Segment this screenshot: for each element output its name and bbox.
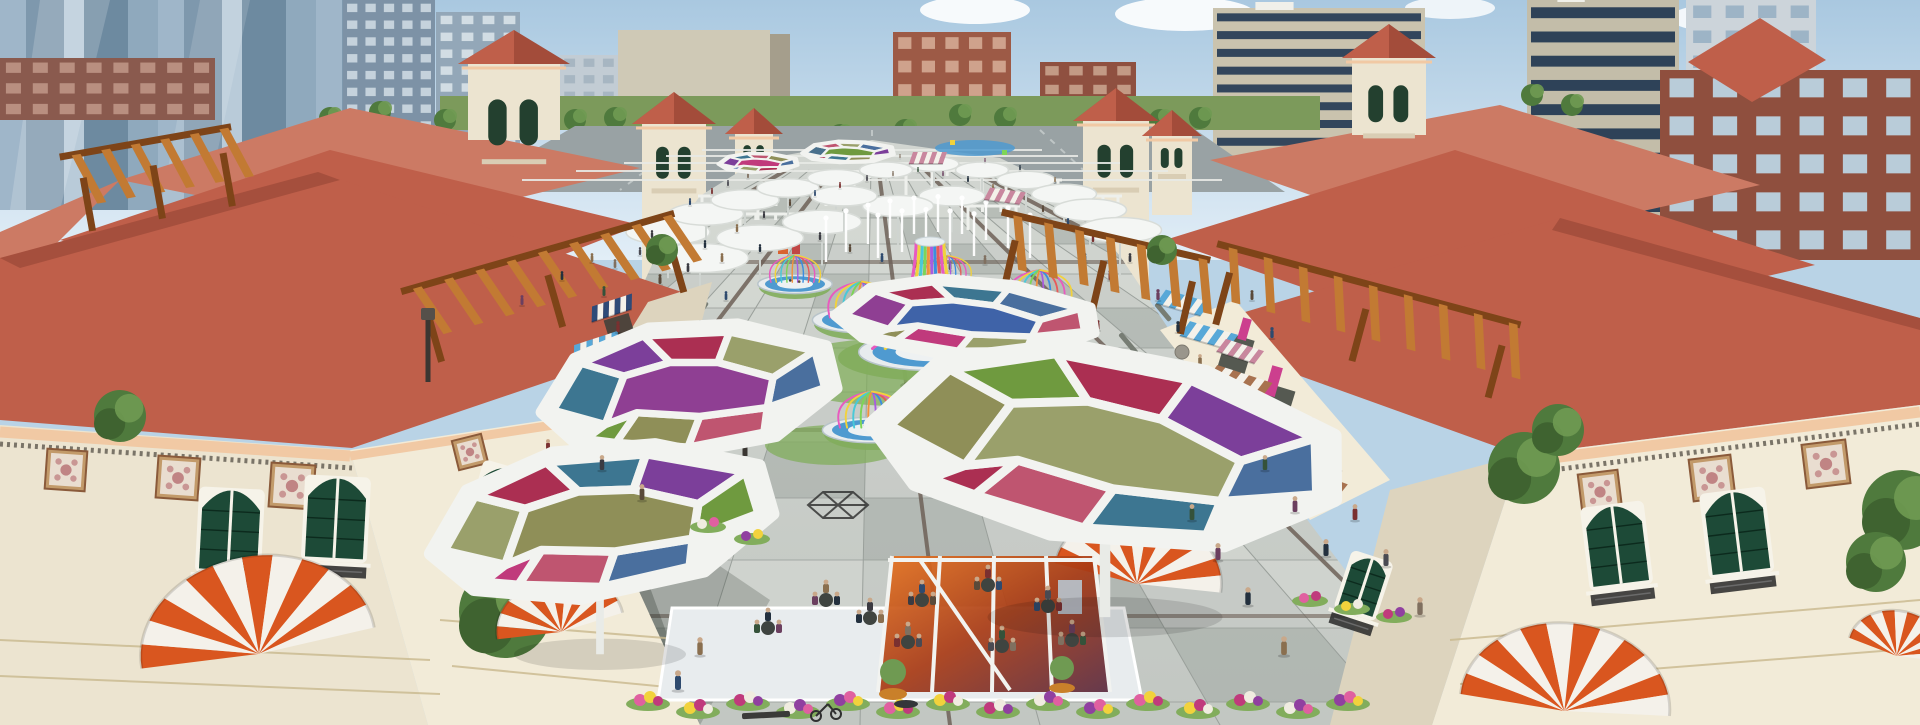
scooter-silhouette [894,700,918,708]
window-band [1531,104,1675,115]
circle-shape [1203,704,1213,714]
rect-shape [1054,178,1056,182]
circle-shape [1353,504,1358,509]
circle-shape [613,107,627,121]
circle-shape [942,171,944,173]
circle-shape [614,259,617,262]
window [140,63,155,73]
window [194,83,209,93]
circle-shape [659,274,662,277]
rect-shape [763,213,765,218]
ellipse-shape [1018,171,1021,172]
circle-shape [689,198,691,200]
table [901,635,915,649]
circle-shape [1323,539,1328,544]
rect-shape [1092,236,1094,242]
window [347,88,357,96]
rect-shape [899,155,900,158]
rect-shape [881,256,884,262]
circle-shape [984,158,985,159]
window [441,33,453,41]
ellipse-shape [865,181,869,182]
circle-shape [865,203,870,208]
ellipse-shape [757,252,762,253]
circle-shape [895,634,900,639]
window [365,37,375,45]
window-band [1531,32,1675,43]
window [898,61,911,73]
ellipse-shape [1260,470,1270,473]
window [402,88,412,96]
circle-shape [887,198,892,203]
foliage-clump [94,390,146,442]
circle-shape [997,577,1002,582]
window [402,4,412,12]
window [1800,78,1824,97]
window [33,83,48,93]
rect-shape [819,234,821,240]
window [922,37,935,49]
panel-canopy [802,141,894,162]
ellipse-shape [1154,300,1161,302]
ellipse-shape [597,470,607,473]
ellipse-shape [879,688,907,700]
ellipse-shape [1127,262,1133,264]
ellipse-shape [688,205,692,206]
ellipse-shape [1376,611,1412,623]
window [1843,78,1867,97]
seated-person [812,596,818,605]
circle-shape [651,230,653,232]
circle-shape [881,253,884,256]
table [819,593,833,607]
circle-shape [1003,107,1017,121]
rect-shape [759,246,761,252]
window [898,84,911,96]
ellipse-shape [813,196,817,197]
rect-shape [591,256,594,262]
window [584,59,595,67]
circle-shape [1190,504,1195,509]
circle-shape [853,696,863,706]
window [1886,230,1910,249]
seated-person [754,624,760,633]
circle-shape [1299,593,1309,603]
window [483,33,495,41]
window [1713,116,1737,135]
ellipse-shape [1053,183,1056,184]
rect-shape [1019,166,1021,170]
arched-window [488,99,506,145]
circle-shape [947,208,952,213]
rect-shape [849,246,851,252]
balcony [482,159,546,164]
window [1756,116,1780,135]
seated-person [916,638,922,647]
seated-person [908,596,914,605]
ellipse-shape [1249,300,1255,302]
rect-shape [421,308,435,320]
rect-shape [468,58,560,140]
window [194,63,209,73]
ellipse-shape [915,237,945,246]
circle-shape [824,580,829,585]
stone-sphere [1175,345,1189,359]
rect-shape [747,174,749,178]
rect-shape [892,172,894,176]
rect-shape [521,298,524,305]
window [1843,154,1867,173]
window [1756,154,1780,173]
ellipse-shape [710,194,714,195]
window [421,4,431,12]
table [863,611,877,625]
circle-shape [1341,601,1351,611]
window [87,83,102,93]
tile-art-panel [45,449,88,492]
window [1886,154,1910,173]
window [1843,230,1867,249]
circle-shape [727,180,729,182]
circle-shape [1553,408,1582,437]
circle-shape [814,190,816,192]
circle-shape [777,620,782,625]
seated-person [988,642,994,651]
window [113,83,128,93]
window [945,84,958,96]
circle-shape [813,592,818,597]
window [1800,154,1824,173]
rect-shape [1042,207,1044,212]
rect-shape [1263,459,1268,470]
circle-shape [603,286,606,289]
window [365,4,375,12]
window [384,37,394,45]
table [995,639,1009,653]
person [1350,504,1360,522]
window [1069,85,1082,94]
rect-shape [1293,500,1298,512]
window [384,88,394,96]
window [421,71,431,79]
ellipse-shape [788,206,792,207]
window [1670,78,1694,97]
seated-person [930,596,936,605]
arched-window [1120,145,1133,178]
seated-person [1010,642,1016,651]
ellipse-shape [746,178,750,179]
window [6,83,21,93]
arched-window [1368,85,1383,122]
window [441,49,453,57]
window [483,16,495,24]
ellipse-shape [899,159,902,160]
foliage-clump [1147,235,1177,265]
table [981,578,995,592]
seated-person [974,581,980,590]
window [1843,116,1867,135]
plaza-rendering [0,0,1920,725]
foliage-clump [1532,404,1584,456]
window [365,20,375,28]
rect-shape [1152,130,1192,215]
planter-pot [1049,656,1075,693]
circle-shape [892,171,894,173]
window [113,104,128,114]
ellipse-shape [1268,338,1275,340]
window [1693,31,1711,44]
rect-shape [1383,554,1388,566]
window [421,88,431,96]
circle-shape [953,696,963,706]
circle-shape [879,610,884,615]
seated-person [765,612,771,621]
seated-person [905,626,911,635]
ellipse-shape [690,521,726,533]
circle-shape [1050,656,1074,680]
circle-shape [755,620,760,625]
balcony [1093,188,1139,193]
table [761,621,775,635]
window [113,63,128,73]
rect-shape [1270,330,1273,338]
circle-shape [906,622,911,627]
rect-shape [1129,256,1132,262]
window [1726,6,1744,19]
window [1886,192,1910,211]
window [1800,192,1824,211]
circle-shape [857,610,862,615]
seated-person [1058,636,1064,645]
circle-shape [899,154,900,155]
window [1693,6,1711,19]
window-band [1531,80,1675,91]
circle-shape [1303,704,1313,714]
circle-shape [753,529,763,539]
circle-shape [1251,290,1254,293]
window [969,37,982,49]
circle-shape [1383,549,1388,554]
circle-shape [725,291,728,294]
circle-shape [600,455,605,460]
circle-shape [640,484,645,489]
balcony [1363,133,1415,138]
rect-shape [839,184,841,188]
rect-shape [659,277,662,284]
window [1713,192,1737,211]
left-brick-low [0,58,215,120]
circle-shape [753,696,763,706]
ellipse-shape [685,272,691,274]
window [969,61,982,73]
window [603,75,614,83]
seated-person [1045,590,1051,599]
circle-shape [819,232,821,234]
window [347,4,357,12]
rect-shape [1190,508,1195,520]
circle-shape [958,104,972,118]
circle-shape [959,195,964,200]
window [60,83,75,93]
rect-shape [1352,52,1426,135]
rect-shape [1245,592,1250,605]
rect-shape [727,182,729,186]
ellipse-shape [984,163,987,164]
window [33,63,48,73]
ellipse-shape [1041,212,1045,213]
rect-shape [984,159,985,162]
circle-shape [984,255,987,258]
window [898,37,911,49]
rect-shape [1156,292,1159,300]
window [462,16,474,24]
circle-shape [880,659,906,685]
circle-shape [1198,107,1212,121]
window [140,104,155,114]
circle-shape [1353,599,1363,609]
rect-shape [984,258,987,264]
rendering-stage: Aerial architectural rendering of a Medi… [0,0,1920,725]
window [1756,192,1780,211]
ellipse-shape [726,186,730,187]
circle-shape [675,670,681,676]
arched-window [1161,148,1169,168]
ellipse-shape [637,255,642,256]
seated-person [919,584,925,593]
rect-shape [687,266,690,272]
tile-art-panel [156,456,201,501]
circle-shape [1383,609,1393,619]
circle-shape [546,439,550,443]
circle-shape [789,279,792,282]
rect-shape [1557,0,1584,2]
circle-shape [909,592,914,597]
person [612,259,618,270]
rect-shape [1353,508,1358,520]
rect-shape [614,262,617,268]
striped-awning [909,152,947,164]
window [384,4,394,12]
table [915,593,929,607]
ellipse-shape [519,305,525,307]
ellipse-shape [1174,332,1181,334]
circle-shape [1067,218,1069,220]
ellipse-shape [762,218,766,219]
circle-shape [931,592,936,597]
window [1117,66,1130,75]
circle-shape [1353,696,1363,706]
ellipse-shape [966,182,970,183]
circle-shape [687,263,690,266]
seated-person [985,569,991,578]
circle-shape [378,101,392,115]
window [1093,66,1106,75]
seated-person [996,581,1002,590]
circle-shape [971,211,976,216]
rect-shape [0,58,215,120]
ellipse-shape [808,169,865,186]
circle-shape [1198,354,1202,358]
rect-shape [1255,2,1293,10]
window [1843,192,1867,211]
ellipse-shape [1334,603,1370,615]
ellipse-shape [589,262,595,264]
window [945,37,958,49]
circle-shape [1011,638,1016,643]
circle-shape [1046,586,1051,591]
circle-shape [711,188,713,190]
rect-shape [561,274,564,280]
rect-shape [950,140,955,145]
circle-shape [1263,455,1268,460]
ellipse-shape [777,279,813,289]
window [922,84,935,96]
circle-shape [849,244,851,246]
ellipse-shape [601,296,607,298]
planter-pot [879,659,907,700]
window [945,61,958,73]
ellipse-shape [838,188,842,189]
circle-shape [736,224,738,226]
window-band [1531,7,1675,18]
circle-shape [1159,237,1176,254]
rect-shape [866,177,868,181]
window [347,71,357,79]
foliage-clump [646,234,678,266]
window [1756,230,1780,249]
ellipse-shape [723,300,729,302]
window [402,54,412,62]
window [441,83,453,91]
line-shape [992,556,994,692]
circle-shape [759,244,761,246]
ellipse-shape [817,240,822,241]
circle-shape [1215,543,1220,548]
circle-shape [839,182,841,184]
window [1045,85,1058,94]
window [441,16,453,24]
circle-shape [868,598,873,603]
seated-person [1080,636,1086,645]
circle-shape [697,637,702,642]
window [167,83,182,93]
circle-shape [1311,591,1321,601]
window [603,59,614,67]
circle-shape [923,207,928,212]
circle-shape [1870,537,1903,570]
window [1069,66,1082,75]
window-band [1531,56,1675,67]
circle-shape [789,199,791,201]
window [60,63,75,73]
seated-person [776,624,782,633]
circle-shape [798,280,801,283]
rect-shape [917,168,919,172]
window [462,33,474,41]
arched-window [1098,145,1111,178]
rect-shape [942,172,944,176]
circle-shape [1019,165,1021,167]
window [365,71,375,79]
window [347,54,357,62]
rect-shape [689,200,691,205]
circle-shape [1129,253,1132,256]
rect-shape [1281,641,1287,655]
ellipse-shape [734,232,739,233]
balcony [652,188,697,193]
window [969,84,982,96]
circle-shape [1054,177,1056,179]
